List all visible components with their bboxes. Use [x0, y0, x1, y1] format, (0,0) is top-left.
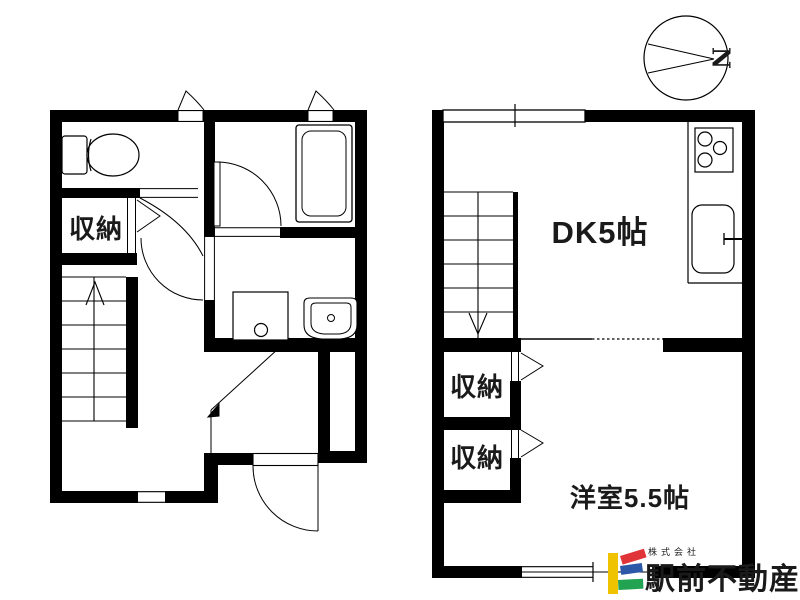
- washing-machine-icon: [233, 292, 288, 340]
- floorplan-page: 収納: [0, 0, 800, 600]
- entrance-step: [208, 338, 290, 453]
- washroom-door: [141, 237, 215, 300]
- door-arc: [253, 466, 318, 531]
- closet-label-1f: 収納: [69, 214, 123, 244]
- room-label-western: 洋室5.5帖: [570, 483, 690, 513]
- compass-icon: N: [644, 16, 736, 100]
- door-arc: [217, 162, 281, 226]
- closet-label-2f-upper: 収納: [450, 372, 504, 402]
- second-floor-plan: DK5帖 洋室5.5帖 収納 収納: [432, 104, 755, 582]
- vent-icon-right: [308, 91, 334, 121]
- closet-label-2f-lower: 収納: [450, 443, 504, 473]
- washbasin-icon: [304, 298, 357, 339]
- logo-bar-yellow: [608, 553, 618, 594]
- logo-bar-red: [620, 549, 647, 565]
- company-logo: 株式会社 駅前不動産: [608, 546, 800, 596]
- toilet-door: [140, 188, 203, 256]
- logo-bar-green: [618, 579, 643, 590]
- north-label: N: [707, 47, 736, 69]
- toilet-icon: [62, 134, 139, 176]
- door-arc: [140, 198, 203, 256]
- window-1f-bottom: [138, 491, 165, 503]
- first-floor-plan: 収納: [50, 91, 367, 531]
- logo-bar-blue: [620, 563, 643, 575]
- room-label-dk: DK5帖: [551, 215, 648, 250]
- stairs-up-icon: [62, 277, 126, 421]
- entrance-door: [253, 454, 318, 532]
- logo-company-name: 駅前不動産: [645, 563, 800, 596]
- stove-icon: [695, 128, 733, 172]
- vent-icon-left: [178, 91, 204, 121]
- window-2f-top: [443, 104, 585, 127]
- bathtub-icon: [296, 125, 352, 222]
- kitchen-sink-icon: [692, 205, 742, 273]
- door-arc: [141, 238, 203, 300]
- stairs-down-icon: [444, 192, 513, 338]
- bathroom-door: [214, 162, 281, 237]
- logo-company-type: 株式会社: [648, 546, 700, 557]
